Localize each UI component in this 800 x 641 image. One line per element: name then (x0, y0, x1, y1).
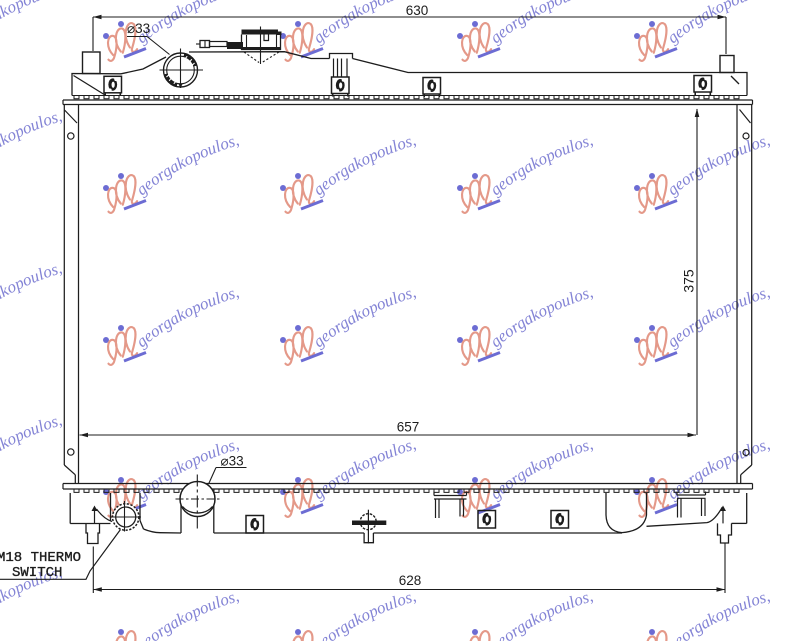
svg-text:628: 628 (399, 573, 422, 588)
svg-text:630: 630 (406, 3, 429, 18)
svg-text:M18 THERMO: M18 THERMO (0, 550, 81, 566)
svg-text:⌀33: ⌀33 (221, 454, 244, 469)
svg-text:⌀33: ⌀33 (127, 21, 150, 36)
svg-text:375: 375 (681, 269, 697, 293)
svg-text:SWITCH: SWITCH (12, 565, 62, 581)
svg-text:657: 657 (397, 420, 420, 435)
